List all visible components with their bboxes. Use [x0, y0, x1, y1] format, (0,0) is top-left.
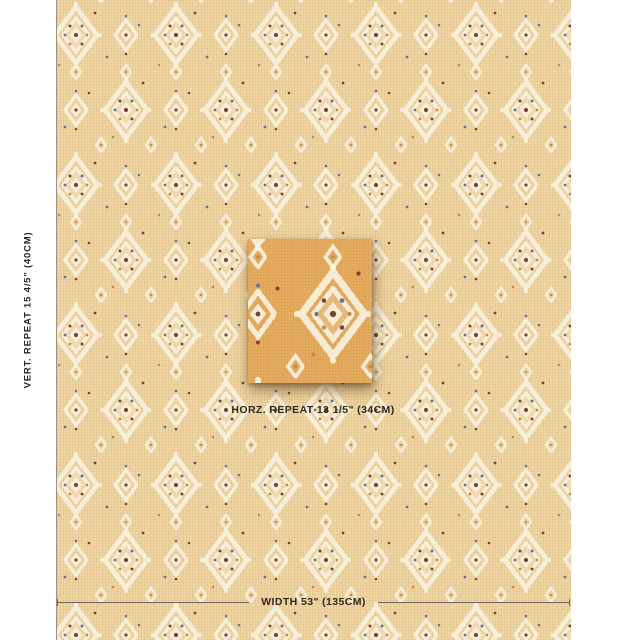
width-measurement: WIDTH 53" (135CM) — [57, 595, 570, 609]
vertical-repeat-label: VERT. REPEAT 15 4/5" (40CM) — [23, 232, 34, 389]
detail-swatch-photo — [248, 239, 372, 383]
product-photo-page: VERT. REPEAT 15 4/5" (40CM) HORZ. REPEAT… — [0, 0, 640, 640]
swatch-pattern-graphic — [248, 239, 372, 383]
width-measure-tick-right — [569, 599, 570, 606]
horizontal-repeat-label: HORZ. REPEAT 13 1/5" (34CM) — [56, 404, 570, 416]
width-label: WIDTH 53" (135CM) — [249, 596, 378, 608]
width-measure-line-left — [58, 602, 249, 603]
width-measure-line-right — [378, 602, 569, 603]
